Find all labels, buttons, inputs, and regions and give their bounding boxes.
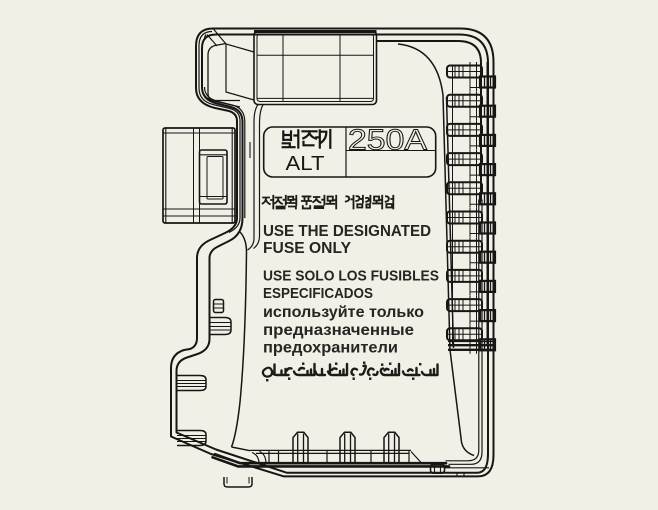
svg-text:предназначенные: предназначенные: [263, 322, 414, 339]
svg-text:используйте только: используйте только: [263, 304, 424, 321]
svg-text:ALT: ALT: [286, 152, 326, 175]
svg-text:ESPECIFICADOS: ESPECIFICADOS: [263, 285, 373, 302]
svg-text:USE SOLO LOS FUSIBLES: USE SOLO LOS FUSIBLES: [263, 268, 439, 285]
svg-text:FUSE ONLY: FUSE ONLY: [263, 240, 352, 257]
svg-text:USE THE DESIGNATED: USE THE DESIGNATED: [263, 223, 431, 240]
svg-text:250A: 250A: [348, 125, 428, 157]
svg-text:предохранители: предохранители: [263, 340, 398, 357]
